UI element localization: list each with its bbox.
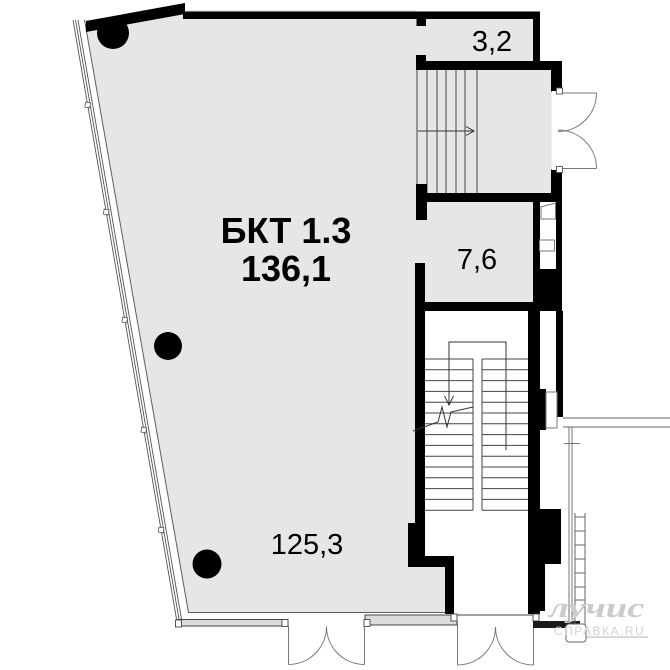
svg-text:136,1: 136,1 bbox=[241, 248, 331, 289]
svg-text:СПРАВКА.RU: СПРАВКА.RU bbox=[554, 624, 645, 638]
svg-text:лучис: лучис bbox=[547, 593, 645, 624]
svg-text:125,3: 125,3 bbox=[271, 529, 344, 561]
svg-text:БКТ 1.3: БКТ 1.3 bbox=[221, 210, 352, 251]
svg-text:7,6: 7,6 bbox=[457, 244, 497, 276]
svg-text:3,2: 3,2 bbox=[472, 26, 512, 58]
